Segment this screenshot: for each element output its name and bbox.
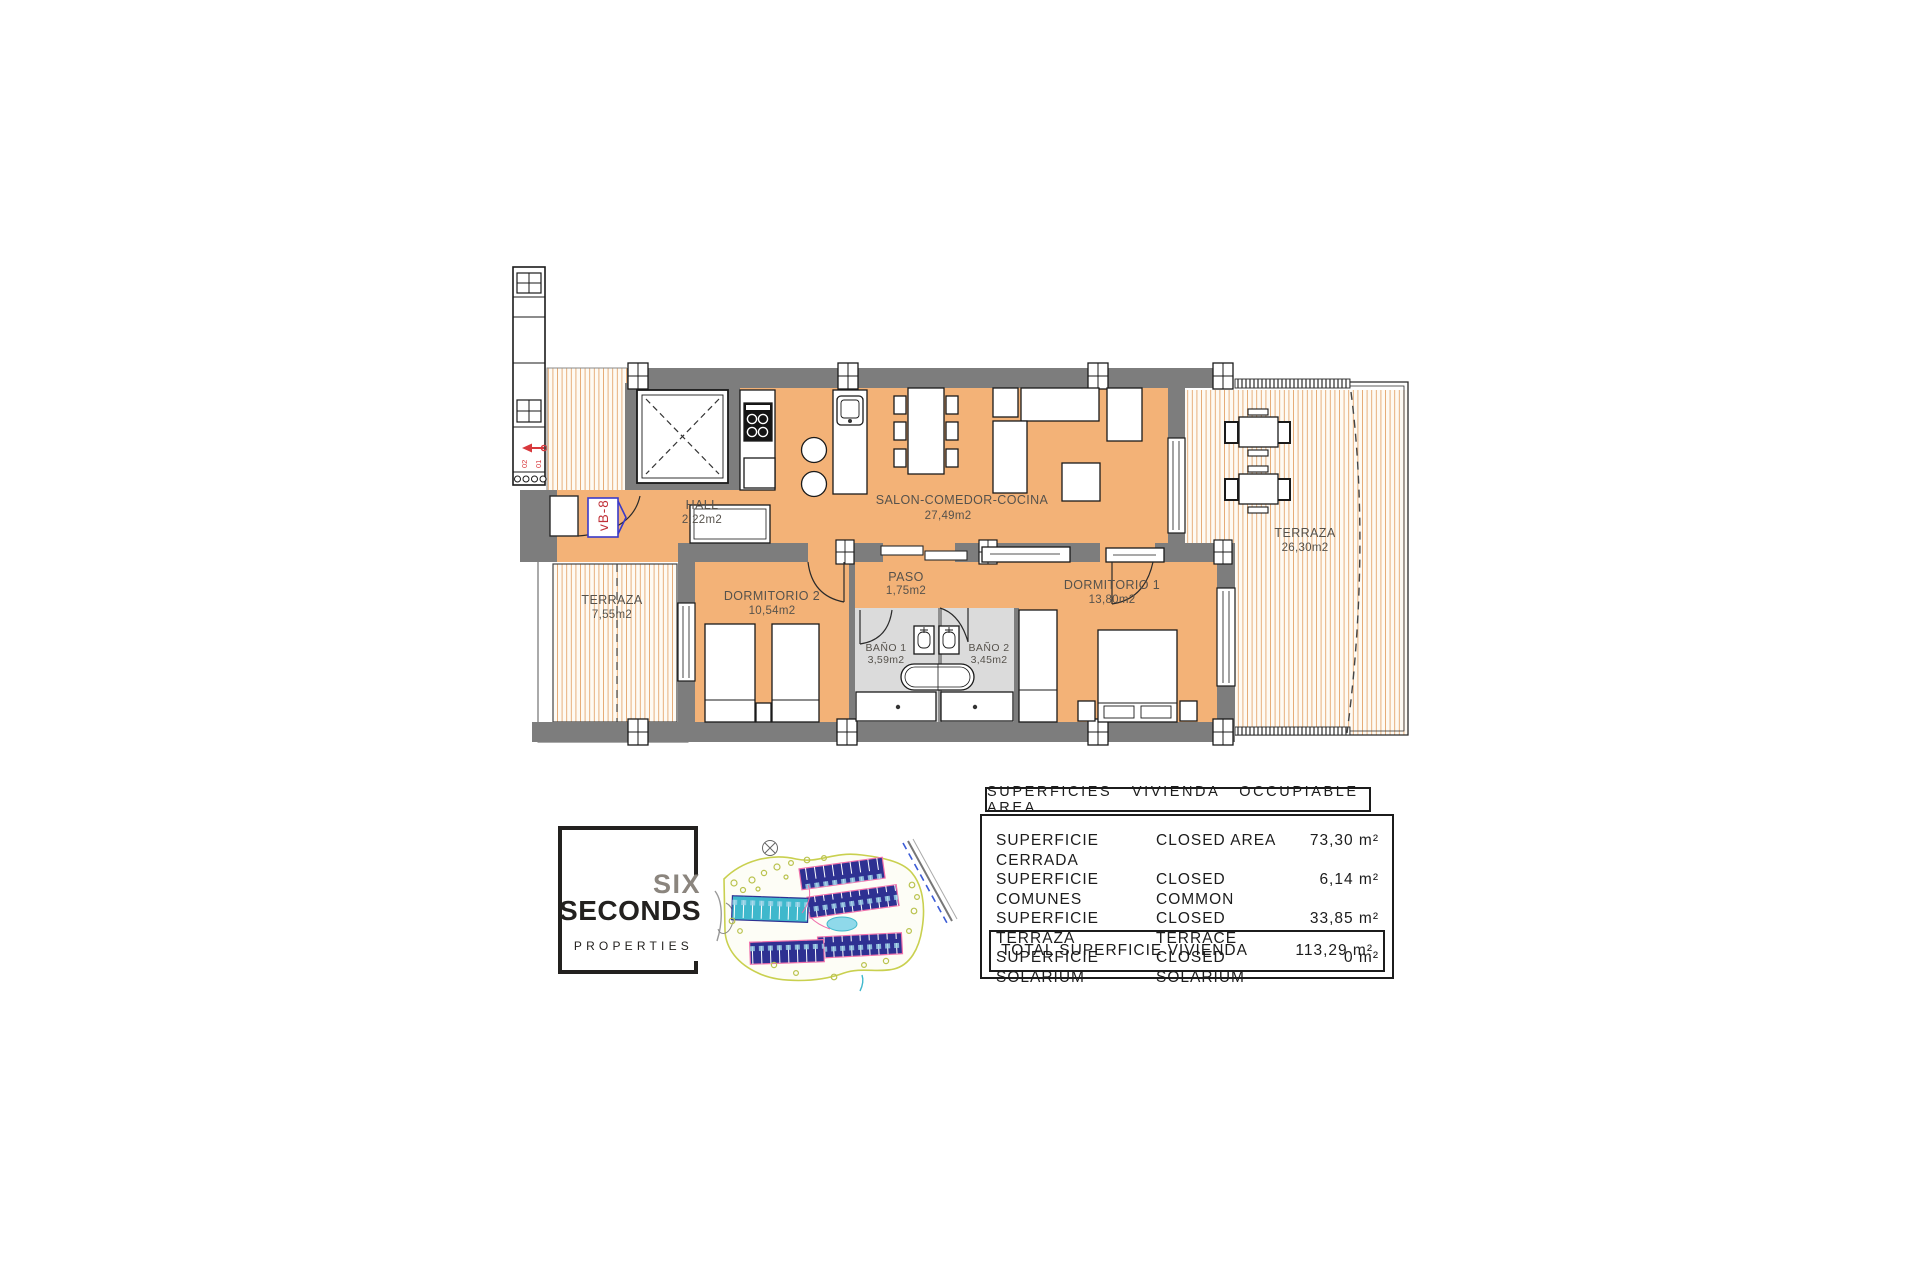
label-bano2: BAÑO 2 <box>969 641 1010 654</box>
label-salon-area: 27,49m2 <box>925 510 972 522</box>
marker-02: 02 <box>520 460 529 468</box>
elevator-core <box>637 390 728 483</box>
label-terraza-left: TERRAZA <box>581 593 642 607</box>
bed <box>772 624 819 722</box>
label-hall: HALL <box>686 498 719 512</box>
logo-seconds: SECONDS <box>559 897 701 925</box>
label-hall-area: 2,22m2 <box>682 514 722 526</box>
pool <box>827 917 857 931</box>
sink-icon <box>837 396 863 425</box>
bed <box>705 624 755 722</box>
entrance-door <box>550 496 578 536</box>
dining-table <box>908 388 944 474</box>
site-plan-thumbnail <box>712 833 960 995</box>
compass-icon <box>763 841 778 856</box>
toilet-icon <box>914 626 934 654</box>
label-bano1-area: 3,59m2 <box>868 654 905 666</box>
tv-unit <box>1107 388 1142 441</box>
areas-table-header: SUPERFICIES VIVIENDA OCCUPIABLE AREA <box>985 787 1371 812</box>
coffee-table <box>1062 463 1100 501</box>
stove-icon <box>744 403 772 441</box>
total-row: TOTAL SUPERFICIE VIVIENDA 113,29 m² <box>989 930 1385 972</box>
areas-table-title: SUPERFICIES VIVIENDA OCCUPIABLE AREA <box>987 784 1369 816</box>
wardrobe <box>1019 610 1057 722</box>
floor-plan-svg: 02 01 <box>500 200 1460 770</box>
total-label: TOTAL SUPERFICIE VIVIENDA <box>1001 942 1248 960</box>
label-salon: SALON-COMEDOR-COCINA <box>876 493 1049 507</box>
label-dormitorio1: DORMITORIO 1 <box>1064 578 1160 592</box>
label-terraza-right: TERRAZA <box>1274 526 1335 540</box>
floor-plan: 02 01 <box>500 200 1460 770</box>
areas-table: SUPERFICIE CERRADA CLOSED AREA 73,30 m² … <box>980 814 1394 979</box>
label-bano1: BAÑO 1 <box>866 641 907 654</box>
total-value: 113,29 m² <box>1295 942 1373 960</box>
marker-01: 01 <box>534 460 543 468</box>
six-seconds-logo: SIX SECONDS PROPERTIES <box>558 826 698 974</box>
bathtub-icon <box>901 664 974 690</box>
railing-hatch-bottom <box>1235 727 1350 735</box>
logo-frame <box>558 826 698 830</box>
label-terraza-right-area: 26,30m2 <box>1282 542 1329 554</box>
label-paso-area: 1,75m2 <box>886 585 926 597</box>
unit-badge-label: vB-8 <box>596 499 611 531</box>
sliding-door <box>925 551 967 560</box>
label-dormitorio1-area: 13,80m2 <box>1089 594 1136 606</box>
table-row: SUPERFICIE COMUNES CLOSED COMMON 6,14 m² <box>996 870 1379 909</box>
toilet-icon <box>939 626 959 654</box>
sliding-door <box>881 546 923 555</box>
stair-tower <box>513 267 546 485</box>
table-row: SUPERFICIE CERRADA CLOSED AREA 73,30 m² <box>996 831 1379 870</box>
label-dormitorio2: DORMITORIO 2 <box>724 589 820 603</box>
label-dormitorio2-area: 10,54m2 <box>749 605 796 617</box>
nightstand <box>756 703 771 722</box>
logo-properties: PROPERTIES <box>574 940 693 952</box>
railing-hatch-top <box>1235 379 1350 388</box>
label-bano2-area: 3,45m2 <box>971 654 1008 666</box>
left-terrace <box>538 552 688 742</box>
stool <box>802 472 827 497</box>
stool <box>802 438 827 463</box>
site-road <box>715 891 721 941</box>
label-terraza-left-area: 7,55m2 <box>592 609 632 621</box>
logo-six: SIX <box>653 871 701 898</box>
sofa <box>993 421 1027 493</box>
page: 02 01 <box>0 0 1920 1280</box>
label-paso: PASO <box>888 570 923 584</box>
nightstand <box>1180 701 1197 721</box>
nightstand <box>1078 701 1095 721</box>
